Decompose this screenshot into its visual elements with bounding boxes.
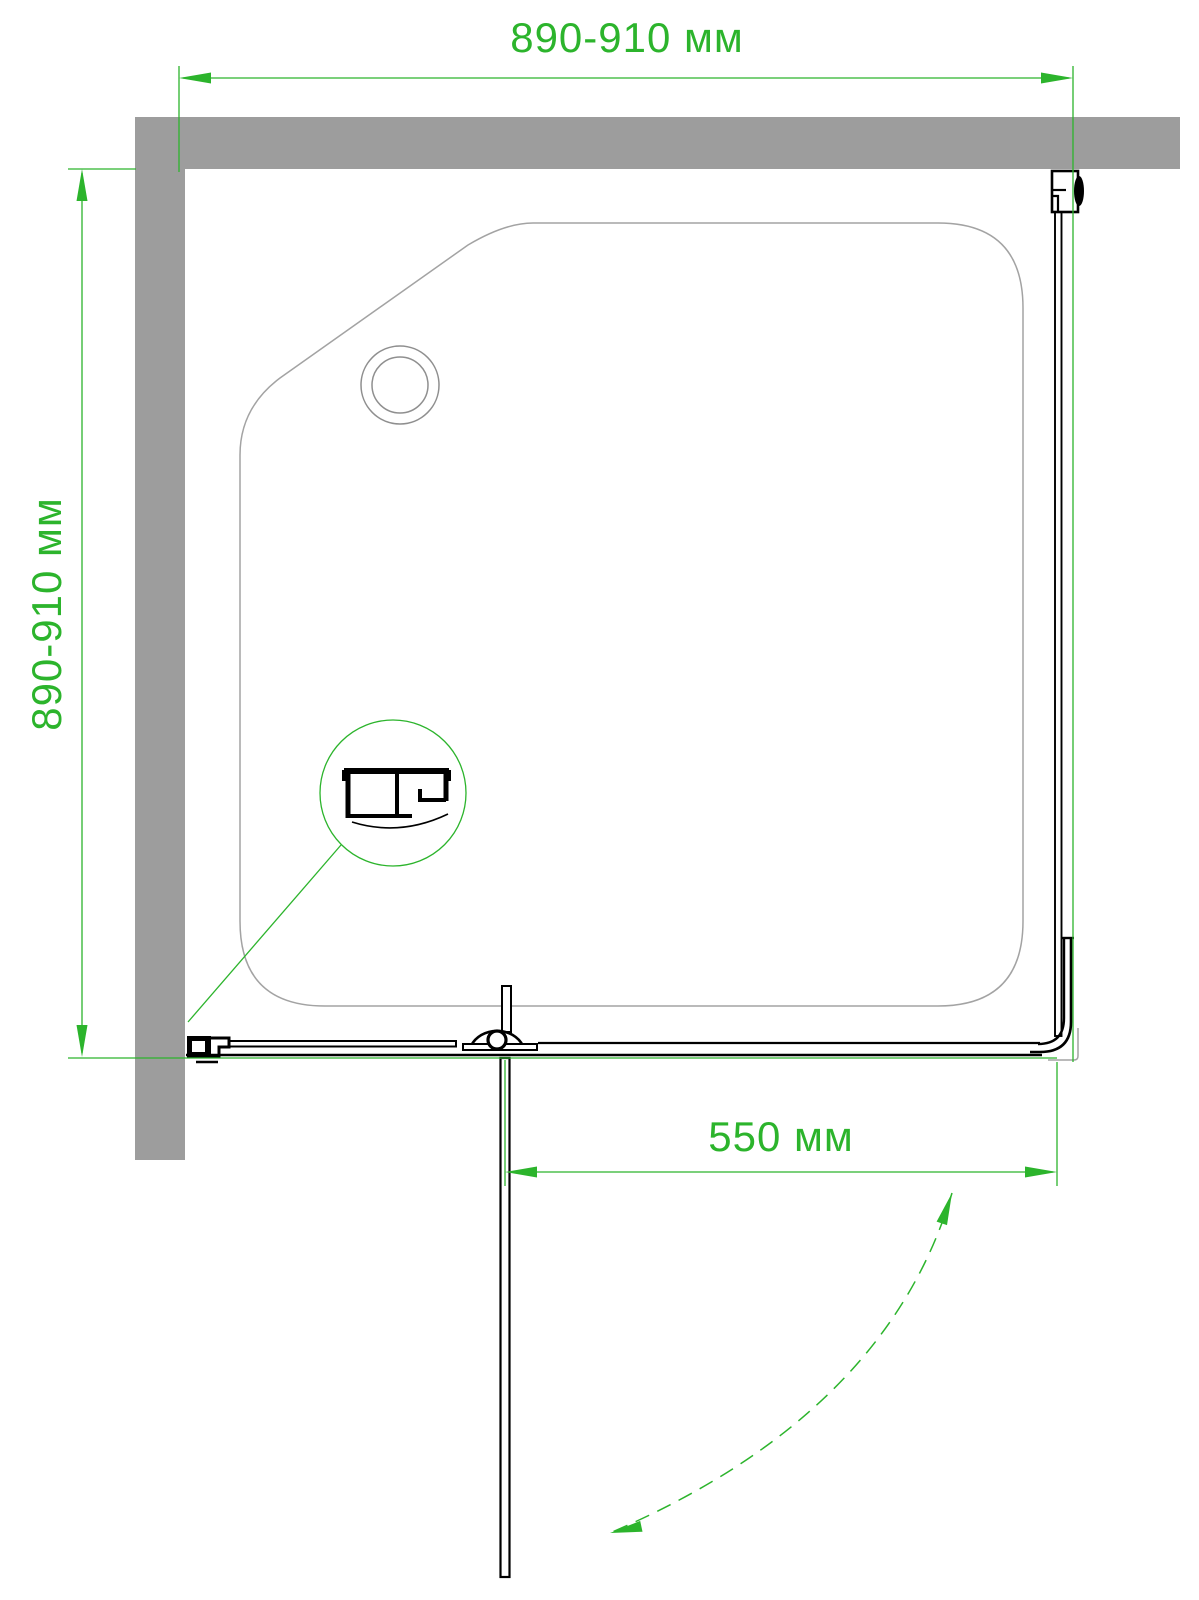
door-swing-arc bbox=[610, 1193, 952, 1533]
right-glass bbox=[1055, 206, 1062, 1036]
fixed-panel-bottom bbox=[186, 1041, 1042, 1055]
arrow-down-icon bbox=[77, 1025, 88, 1057]
arrow-right-icon bbox=[1025, 1167, 1057, 1178]
dimension-top-width bbox=[179, 66, 1073, 1062]
profile-clamp-bump bbox=[1074, 176, 1084, 206]
hinge-pivot bbox=[488, 1031, 506, 1049]
arrow-left-icon bbox=[179, 73, 211, 84]
drain-icon bbox=[361, 346, 439, 424]
wall-profile-top-right bbox=[1052, 171, 1084, 212]
dimension-left-depth bbox=[68, 169, 1057, 1058]
dimension-label-top-width: 890-910 мм bbox=[510, 17, 744, 59]
dimension-lines bbox=[68, 66, 1073, 1533]
wall-top bbox=[135, 117, 1180, 169]
tray-basin-outline bbox=[240, 223, 1023, 1006]
profile-channel bbox=[211, 1038, 229, 1056]
plan-canvas bbox=[0, 0, 1199, 1600]
arrow-right-icon bbox=[1041, 73, 1073, 84]
door-knob bbox=[502, 986, 511, 1032]
wall-left bbox=[135, 117, 185, 1160]
swing-arrow-left-icon bbox=[610, 1521, 643, 1533]
dimension-label-door-width: 550 мм bbox=[708, 1116, 854, 1158]
profile-cross-section bbox=[344, 770, 449, 828]
dimension-label-left-depth: 890-910 мм bbox=[26, 497, 68, 731]
shower-tray bbox=[240, 223, 1078, 1060]
shower-enclosure-plan-drawing: 890-910 мм 890-910 мм 550 мм bbox=[0, 0, 1199, 1600]
door-assembly bbox=[463, 986, 537, 1577]
detail-leader-line bbox=[188, 845, 341, 1022]
door-hinge bbox=[463, 1031, 537, 1050]
arrow-up-icon bbox=[77, 169, 88, 201]
swing-arrow-up-icon bbox=[937, 1193, 952, 1225]
glass-panel-right bbox=[1030, 171, 1084, 1052]
bottom-glass-left-segment bbox=[229, 1041, 456, 1047]
detail-callout bbox=[188, 720, 466, 1022]
profile-cavity bbox=[192, 1041, 205, 1052]
